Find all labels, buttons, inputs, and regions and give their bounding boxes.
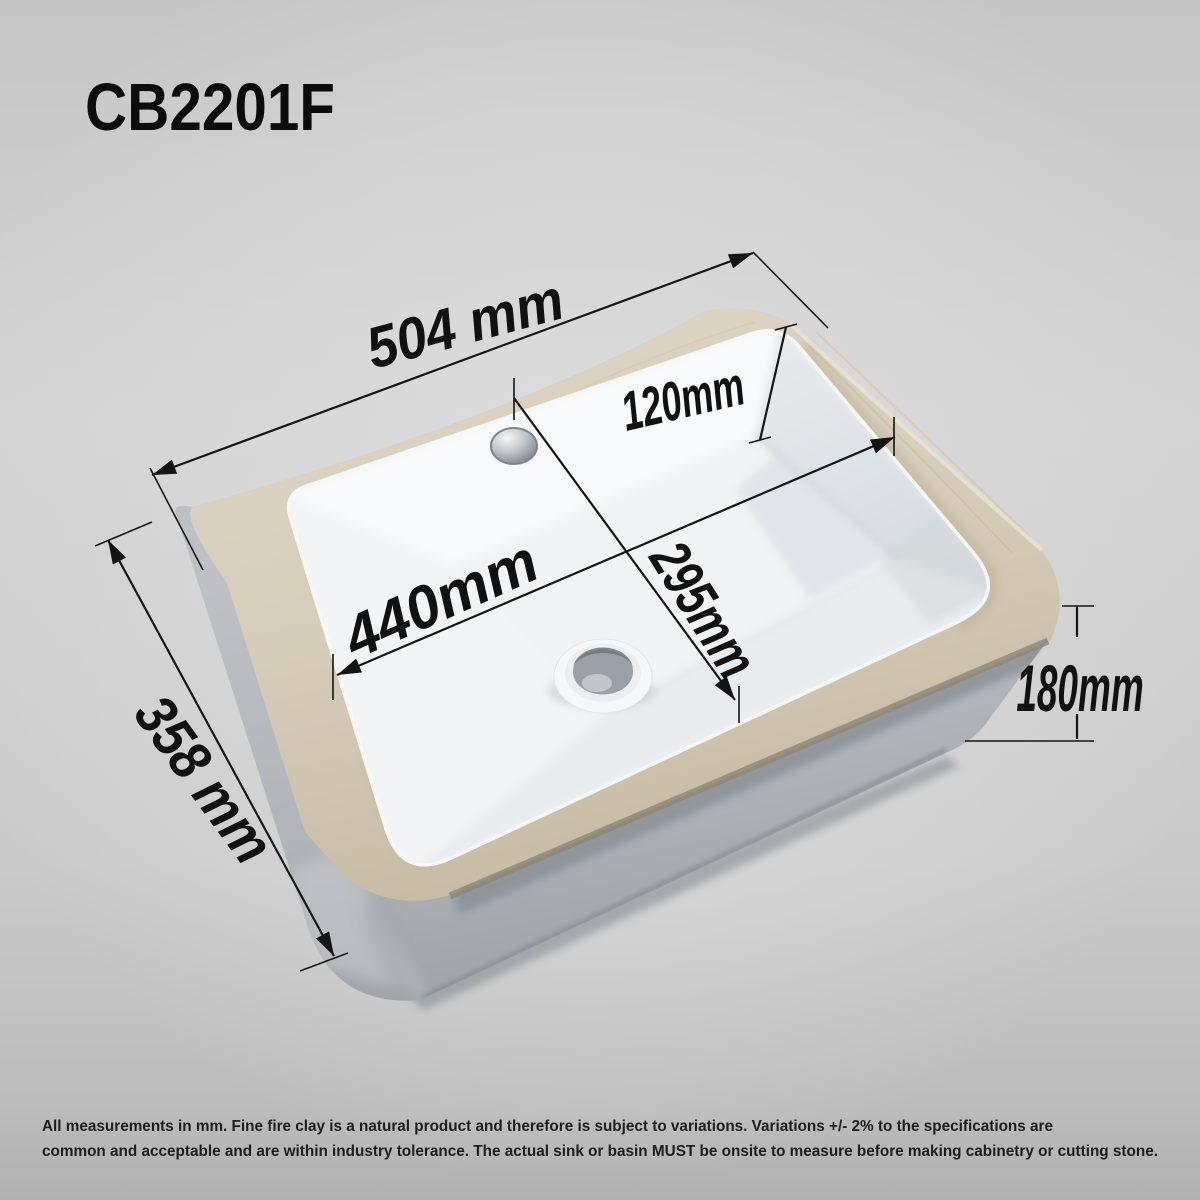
svg-text:180mm: 180mm — [1016, 653, 1143, 726]
svg-text:CB2201F: CB2201F — [85, 70, 335, 145]
svg-text:common and acceptable and are: common and acceptable and are within ind… — [42, 1143, 1158, 1160]
svg-text:All measurements in mm. Fine f: All measurements in mm. Fine fire clay i… — [42, 1118, 1053, 1135]
